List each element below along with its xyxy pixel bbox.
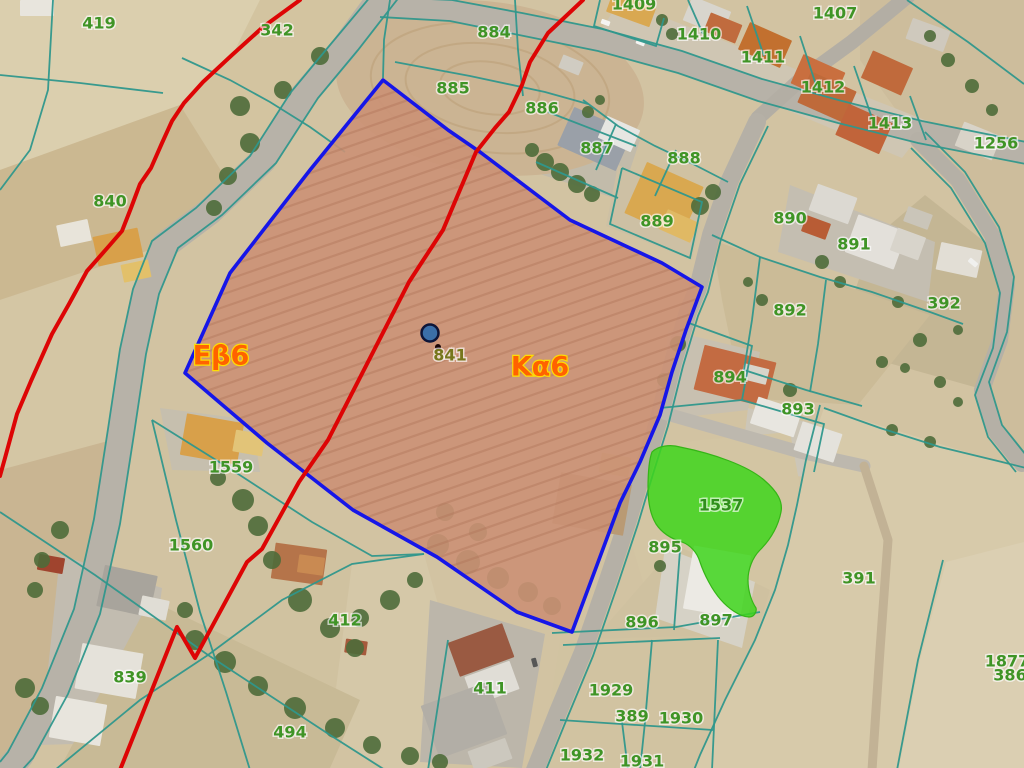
parcel-label-887: 887 xyxy=(580,139,613,158)
parcel-label-389: 389 xyxy=(615,707,648,726)
building xyxy=(20,0,54,16)
parcel-label-1256: 1256 xyxy=(974,134,1019,153)
blue-point-marker[interactable] xyxy=(422,325,439,342)
tree xyxy=(240,133,260,153)
tree xyxy=(177,602,193,618)
parcel-label-1537: 1537 xyxy=(699,496,744,515)
tree xyxy=(15,678,35,698)
zone-label-Κα6: Κα6 xyxy=(511,352,569,383)
tree xyxy=(924,30,936,42)
tree xyxy=(51,521,69,539)
parcel-label-896: 896 xyxy=(625,613,658,632)
tree xyxy=(654,560,666,572)
parcel-label-897: 897 xyxy=(699,611,732,630)
tree xyxy=(986,104,998,116)
tree xyxy=(953,397,963,407)
tree xyxy=(248,516,268,536)
parcel-label-1407: 1407 xyxy=(813,4,858,23)
tree xyxy=(380,590,400,610)
parcel-label-895: 895 xyxy=(648,538,681,557)
tree xyxy=(756,294,768,306)
parcel-label-412: 412 xyxy=(328,611,361,630)
parcel-label-411: 411 xyxy=(473,679,506,698)
tree xyxy=(953,325,963,335)
tree xyxy=(595,95,605,105)
tree xyxy=(965,79,979,93)
parcel-label-885: 885 xyxy=(436,79,469,98)
map-viewport[interactable]: 4193428848858861409141014111407141214131… xyxy=(0,0,1024,768)
map-svg[interactable]: 4193428848858861409141014111407141214131… xyxy=(0,0,1024,768)
tree xyxy=(232,489,254,511)
tree xyxy=(34,552,50,568)
tree xyxy=(230,96,250,116)
tree xyxy=(346,639,364,657)
parcel-label-392: 392 xyxy=(927,294,960,313)
tree xyxy=(525,143,539,157)
parcel-label-840: 840 xyxy=(93,192,126,211)
parcel-label-839: 839 xyxy=(113,668,146,687)
parcel-label-886: 886 xyxy=(525,99,558,118)
tree xyxy=(263,551,281,569)
parcel-label-1413: 1413 xyxy=(868,114,913,133)
parcel-label-391: 391 xyxy=(842,569,875,588)
parcel-label-884: 884 xyxy=(477,23,510,42)
parcel-label-1411: 1411 xyxy=(741,48,786,67)
parcel-label-889: 889 xyxy=(640,212,673,231)
parcel-label-342: 342 xyxy=(260,21,293,40)
parcel-label-892: 892 xyxy=(773,301,806,320)
parcel-label-1560: 1560 xyxy=(169,536,214,555)
zone-label-Εβ6: Εβ6 xyxy=(193,341,250,372)
tree xyxy=(913,333,927,347)
tree xyxy=(705,184,721,200)
parcel-label-888: 888 xyxy=(667,149,700,168)
parcel-label-1932: 1932 xyxy=(560,746,605,765)
parcel-label-1929: 1929 xyxy=(589,681,634,700)
parcel-label-1410: 1410 xyxy=(677,25,722,44)
tree xyxy=(941,53,955,67)
parcel-label-893: 893 xyxy=(781,400,814,419)
parcel-label-1559: 1559 xyxy=(209,458,254,477)
parcel-label-894: 894 xyxy=(713,368,746,387)
tree xyxy=(934,376,946,388)
tree xyxy=(401,747,419,765)
parcel-label-494: 494 xyxy=(273,723,306,742)
tree xyxy=(363,736,381,754)
tree xyxy=(31,697,49,715)
building xyxy=(297,554,325,575)
tree xyxy=(206,200,222,216)
parcel-label-1409: 1409 xyxy=(612,0,657,14)
tree xyxy=(900,363,910,373)
parcel-label-1930: 1930 xyxy=(659,709,704,728)
parcel-label-890: 890 xyxy=(773,209,806,228)
parcel-label-891: 891 xyxy=(837,235,870,254)
parcel-label-841: 841 xyxy=(433,346,466,365)
tree xyxy=(27,582,43,598)
tree xyxy=(815,255,829,269)
tree xyxy=(876,356,888,368)
parcel-label-386: 386 xyxy=(993,666,1024,685)
tree xyxy=(325,718,345,738)
parcel-label-1931: 1931 xyxy=(620,752,665,768)
tree xyxy=(743,277,753,287)
parcel-label-419: 419 xyxy=(82,14,115,33)
parcel-label-1412: 1412 xyxy=(801,78,846,97)
building xyxy=(49,696,108,746)
tree xyxy=(407,572,423,588)
